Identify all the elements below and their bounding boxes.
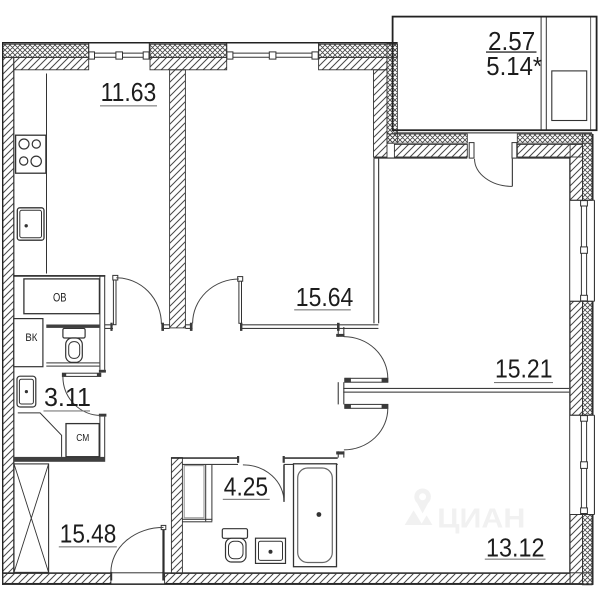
svg-text:3.11: 3.11 xyxy=(44,382,91,412)
svg-text:13.12: 13.12 xyxy=(486,533,545,563)
svg-text:СМ: СМ xyxy=(76,433,89,444)
svg-text:ВК: ВК xyxy=(25,332,38,344)
svg-text:5.14*: 5.14* xyxy=(486,51,542,81)
svg-text:11.63: 11.63 xyxy=(101,77,157,107)
svg-text:15.21: 15.21 xyxy=(495,354,553,384)
svg-text:ЦИАН: ЦИАН xyxy=(437,503,525,534)
svg-text:15.64: 15.64 xyxy=(296,282,354,312)
svg-text:4.25: 4.25 xyxy=(224,471,268,501)
svg-text:ОВ: ОВ xyxy=(53,293,67,305)
svg-text:15.48: 15.48 xyxy=(60,519,117,549)
